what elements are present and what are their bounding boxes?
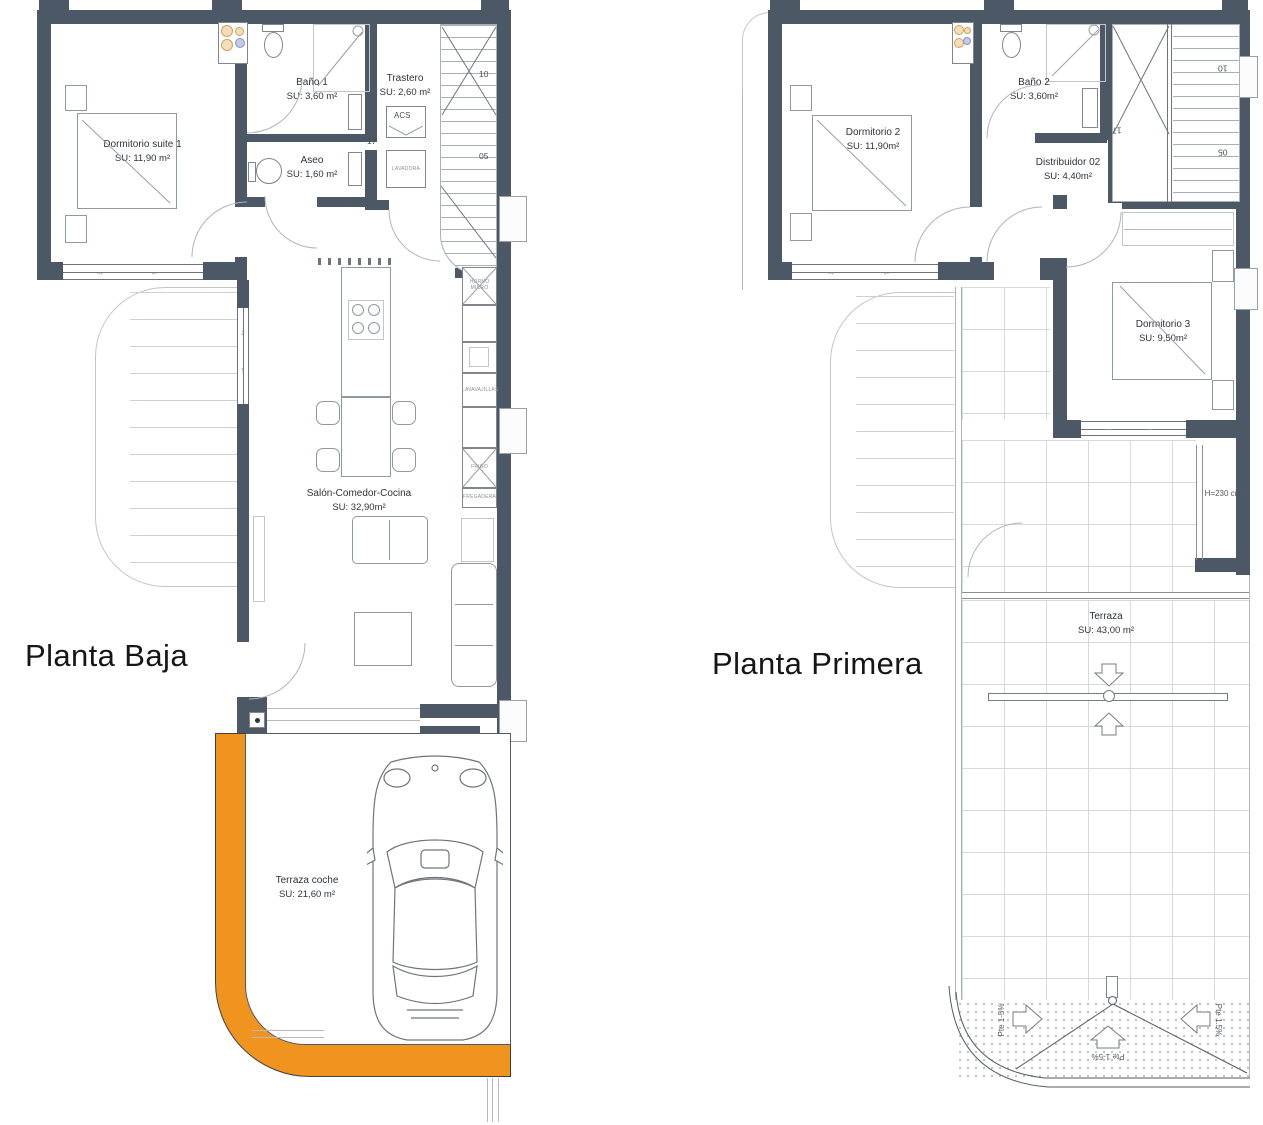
- slope-diagonal: [1113, 1004, 1247, 1073]
- svg-overlay-right: [0, 0, 1263, 1125]
- door-arc-dormitorio2: [915, 207, 970, 262]
- arrow-down-icon: [1095, 664, 1123, 686]
- bed-fold-line: [1120, 286, 1205, 374]
- door-arc-dormitorio3: [1066, 212, 1121, 267]
- shower-diagonal: [1052, 30, 1098, 76]
- door-arc-distribuidor: [987, 207, 1042, 262]
- slope-arrow-right-icon: [1013, 1005, 1042, 1033]
- door-arc-bano2: [987, 85, 1040, 138]
- plan-planta-primera: H=230 cm → ← → ← Dormitorio 2 SU: 11,90m…: [0, 0, 1263, 1125]
- slope-arrow-left-icon: [1181, 1005, 1210, 1033]
- door-arc-terraza: [968, 523, 1022, 577]
- plot-curve: [956, 992, 1045, 1078]
- arrow-up-icon: [1095, 713, 1123, 735]
- floorplan-sheet: → ← ↓ ↑ Dormitorio suite 1 SU: 11,90 m² …: [0, 0, 1263, 1125]
- bed-fold-line: [817, 120, 906, 206]
- slope-arrow-up-icon: [1091, 1026, 1125, 1048]
- plan-title-primera: Planta Primera: [712, 646, 923, 682]
- plot-curve-outer: [949, 986, 1048, 1087]
